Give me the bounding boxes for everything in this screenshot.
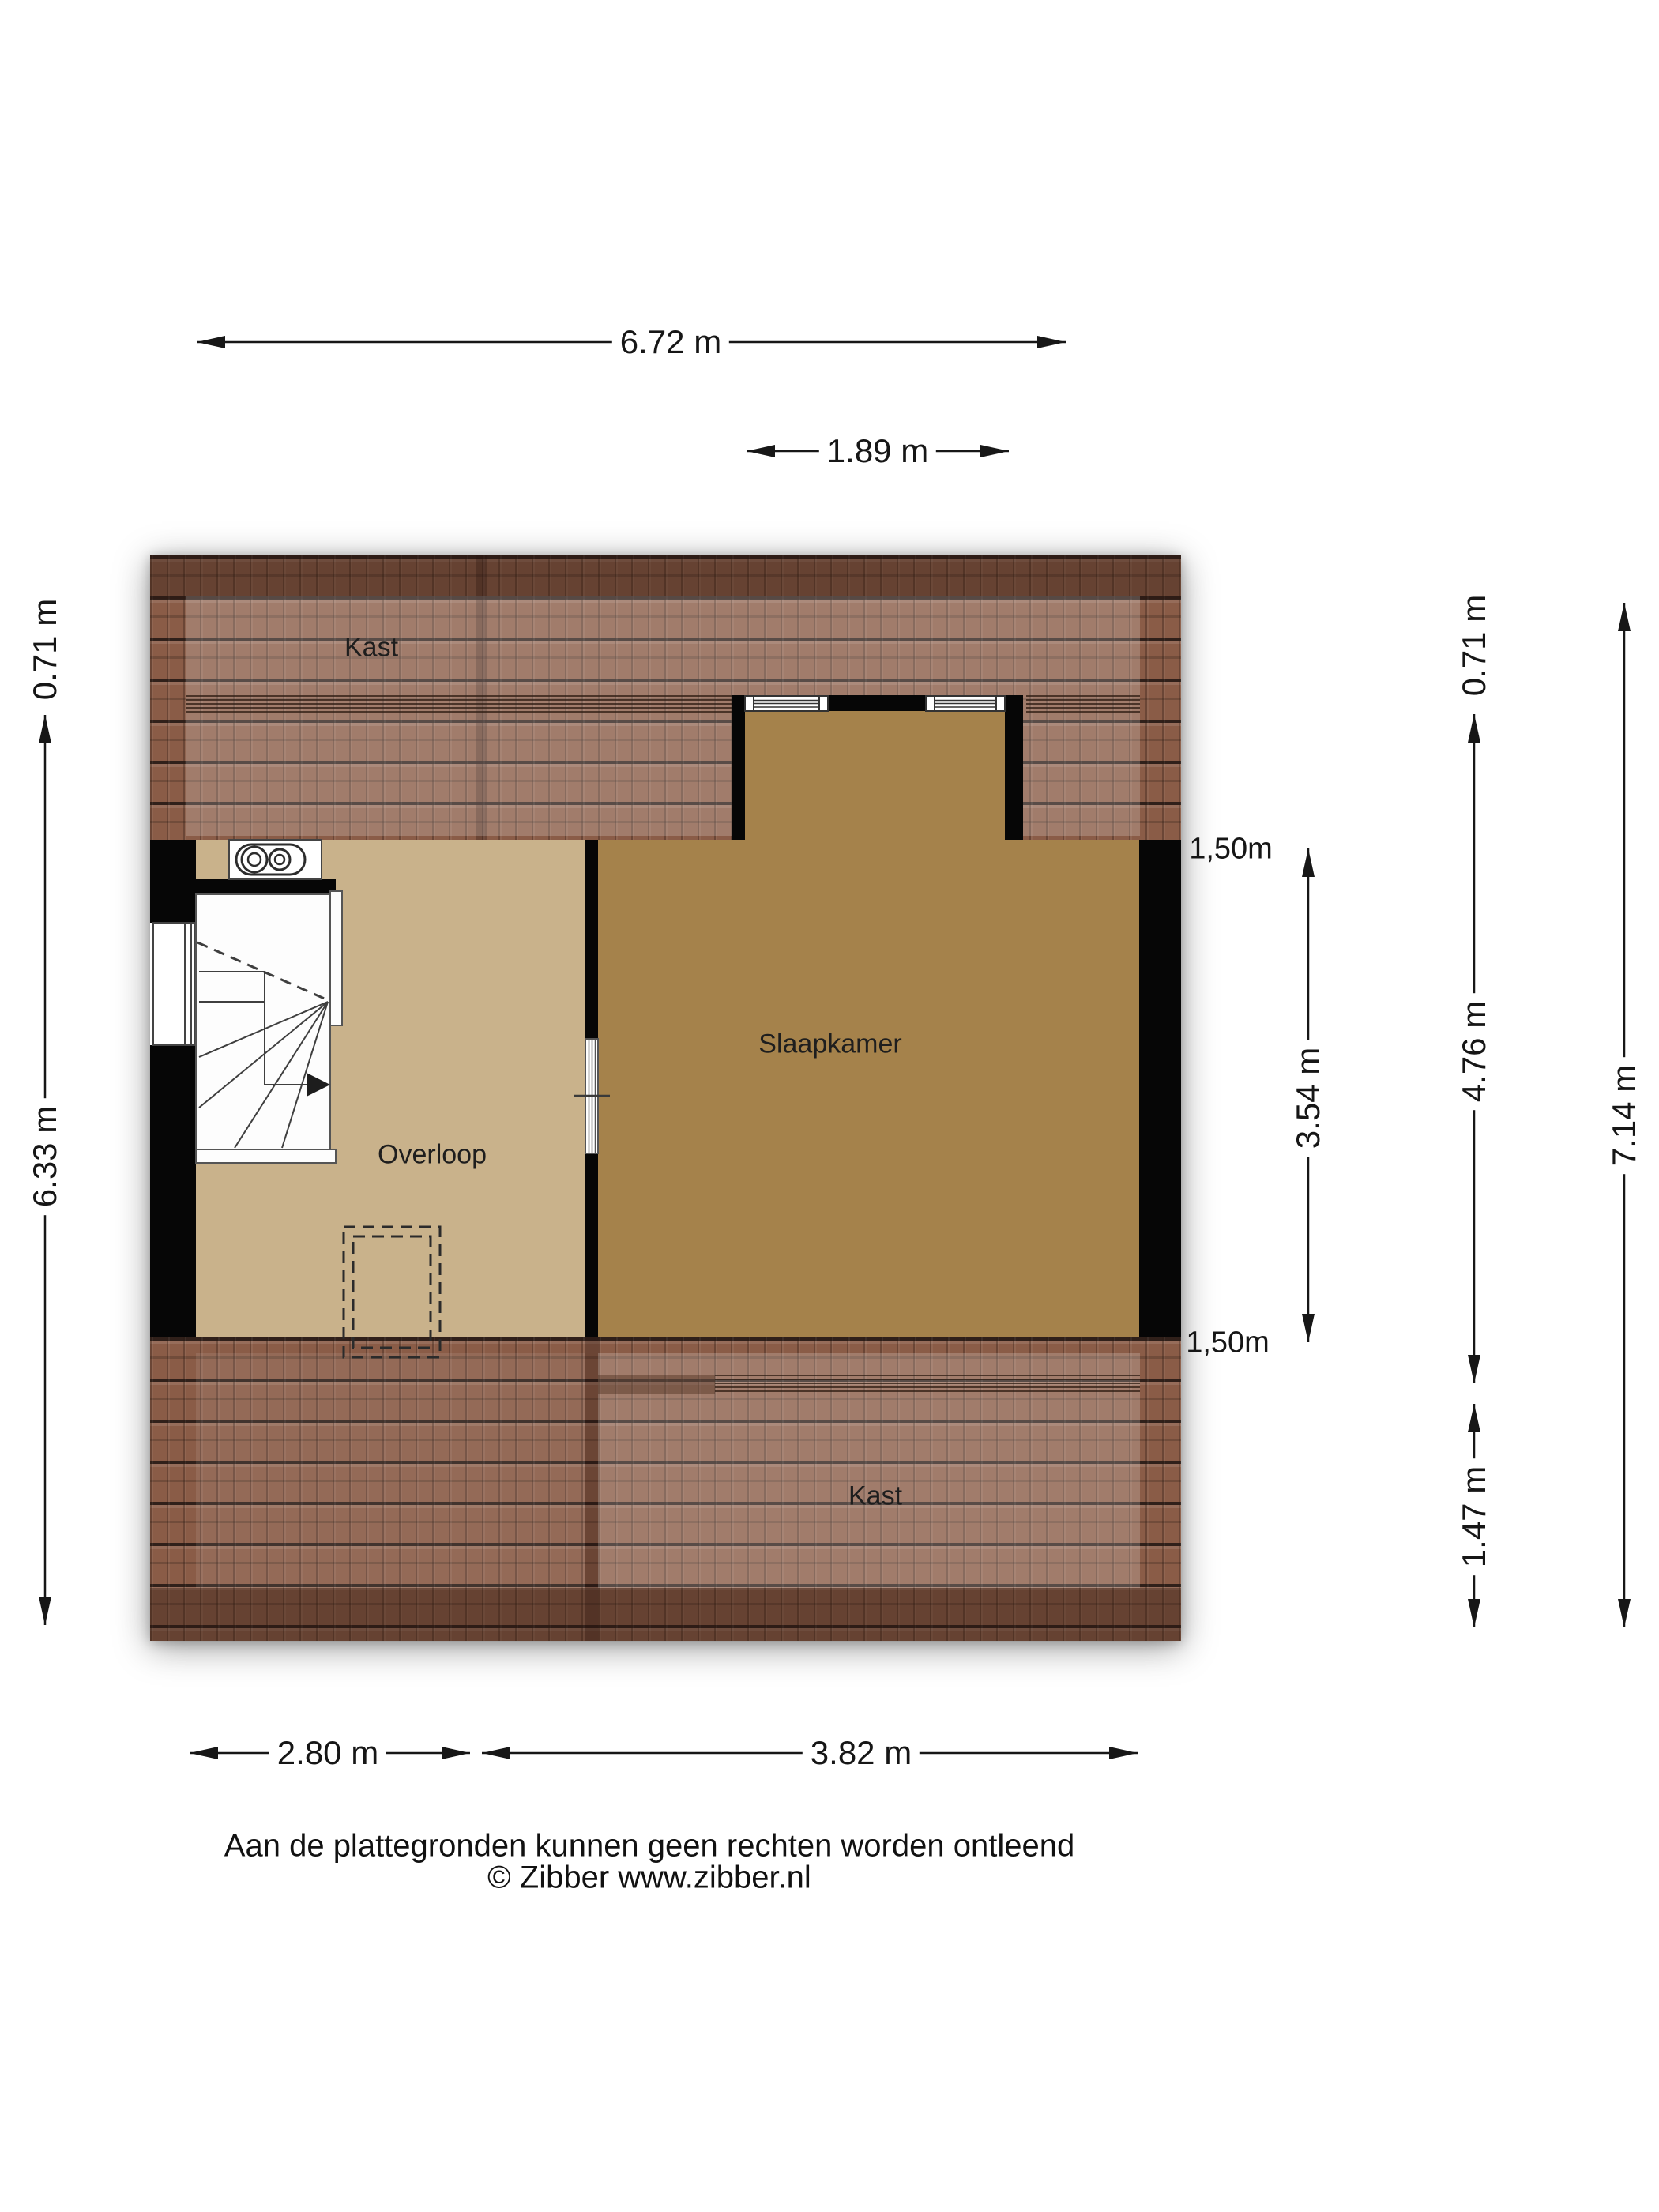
footer-copyright: © Zibber www.zibber.nl <box>487 1860 811 1896</box>
dim-bottom-overloop: 2.80 m <box>269 1736 386 1770</box>
hatch-dashed-outline <box>344 1227 440 1357</box>
dim-top-total: 6.72 m <box>612 325 729 359</box>
dormer-window-icon <box>745 696 828 711</box>
footer-disclaimer: Aan de plattegronden kunnen geen rechten… <box>224 1829 1074 1864</box>
room-label-overloop: Overloop <box>378 1140 487 1171</box>
stairs-symbol <box>196 891 342 1163</box>
floorplan-page: Kast Overloop Slaapkamer Kast 6.72 m 1.8… <box>0 0 1659 2212</box>
headroom-label-bottom: 1,50m <box>1186 1326 1270 1360</box>
dim-bottom-slaapkamer: 3.82 m <box>803 1736 920 1770</box>
dim-left-upper: 0.71 m <box>28 599 62 700</box>
ventilation-unit-icon <box>229 840 322 879</box>
linework-layer <box>0 0 1659 2212</box>
dim-right-lower: 1.47 m <box>1457 1458 1492 1575</box>
door-icon <box>574 1039 610 1153</box>
dim-left-total: 6.33 m <box>28 1098 62 1215</box>
dim-dormer-width: 1.89 m <box>819 434 936 468</box>
headroom-label-top: 1,50m <box>1189 833 1273 867</box>
dim-right-total: 7.14 m <box>1607 1057 1642 1174</box>
room-label-kast-top: Kast <box>344 633 398 664</box>
side-window-icon <box>153 923 194 1045</box>
room-label-kast-bottom: Kast <box>848 1481 902 1512</box>
room-label-slaapkamer: Slaapkamer <box>758 1029 901 1060</box>
dim-slaapkamer-depth: 3.54 m <box>1291 1040 1326 1157</box>
dormer-window-icon <box>926 696 1005 711</box>
dim-right-middle: 4.76 m <box>1457 993 1492 1110</box>
dim-right-upper: 0.71 m <box>1458 595 1491 696</box>
